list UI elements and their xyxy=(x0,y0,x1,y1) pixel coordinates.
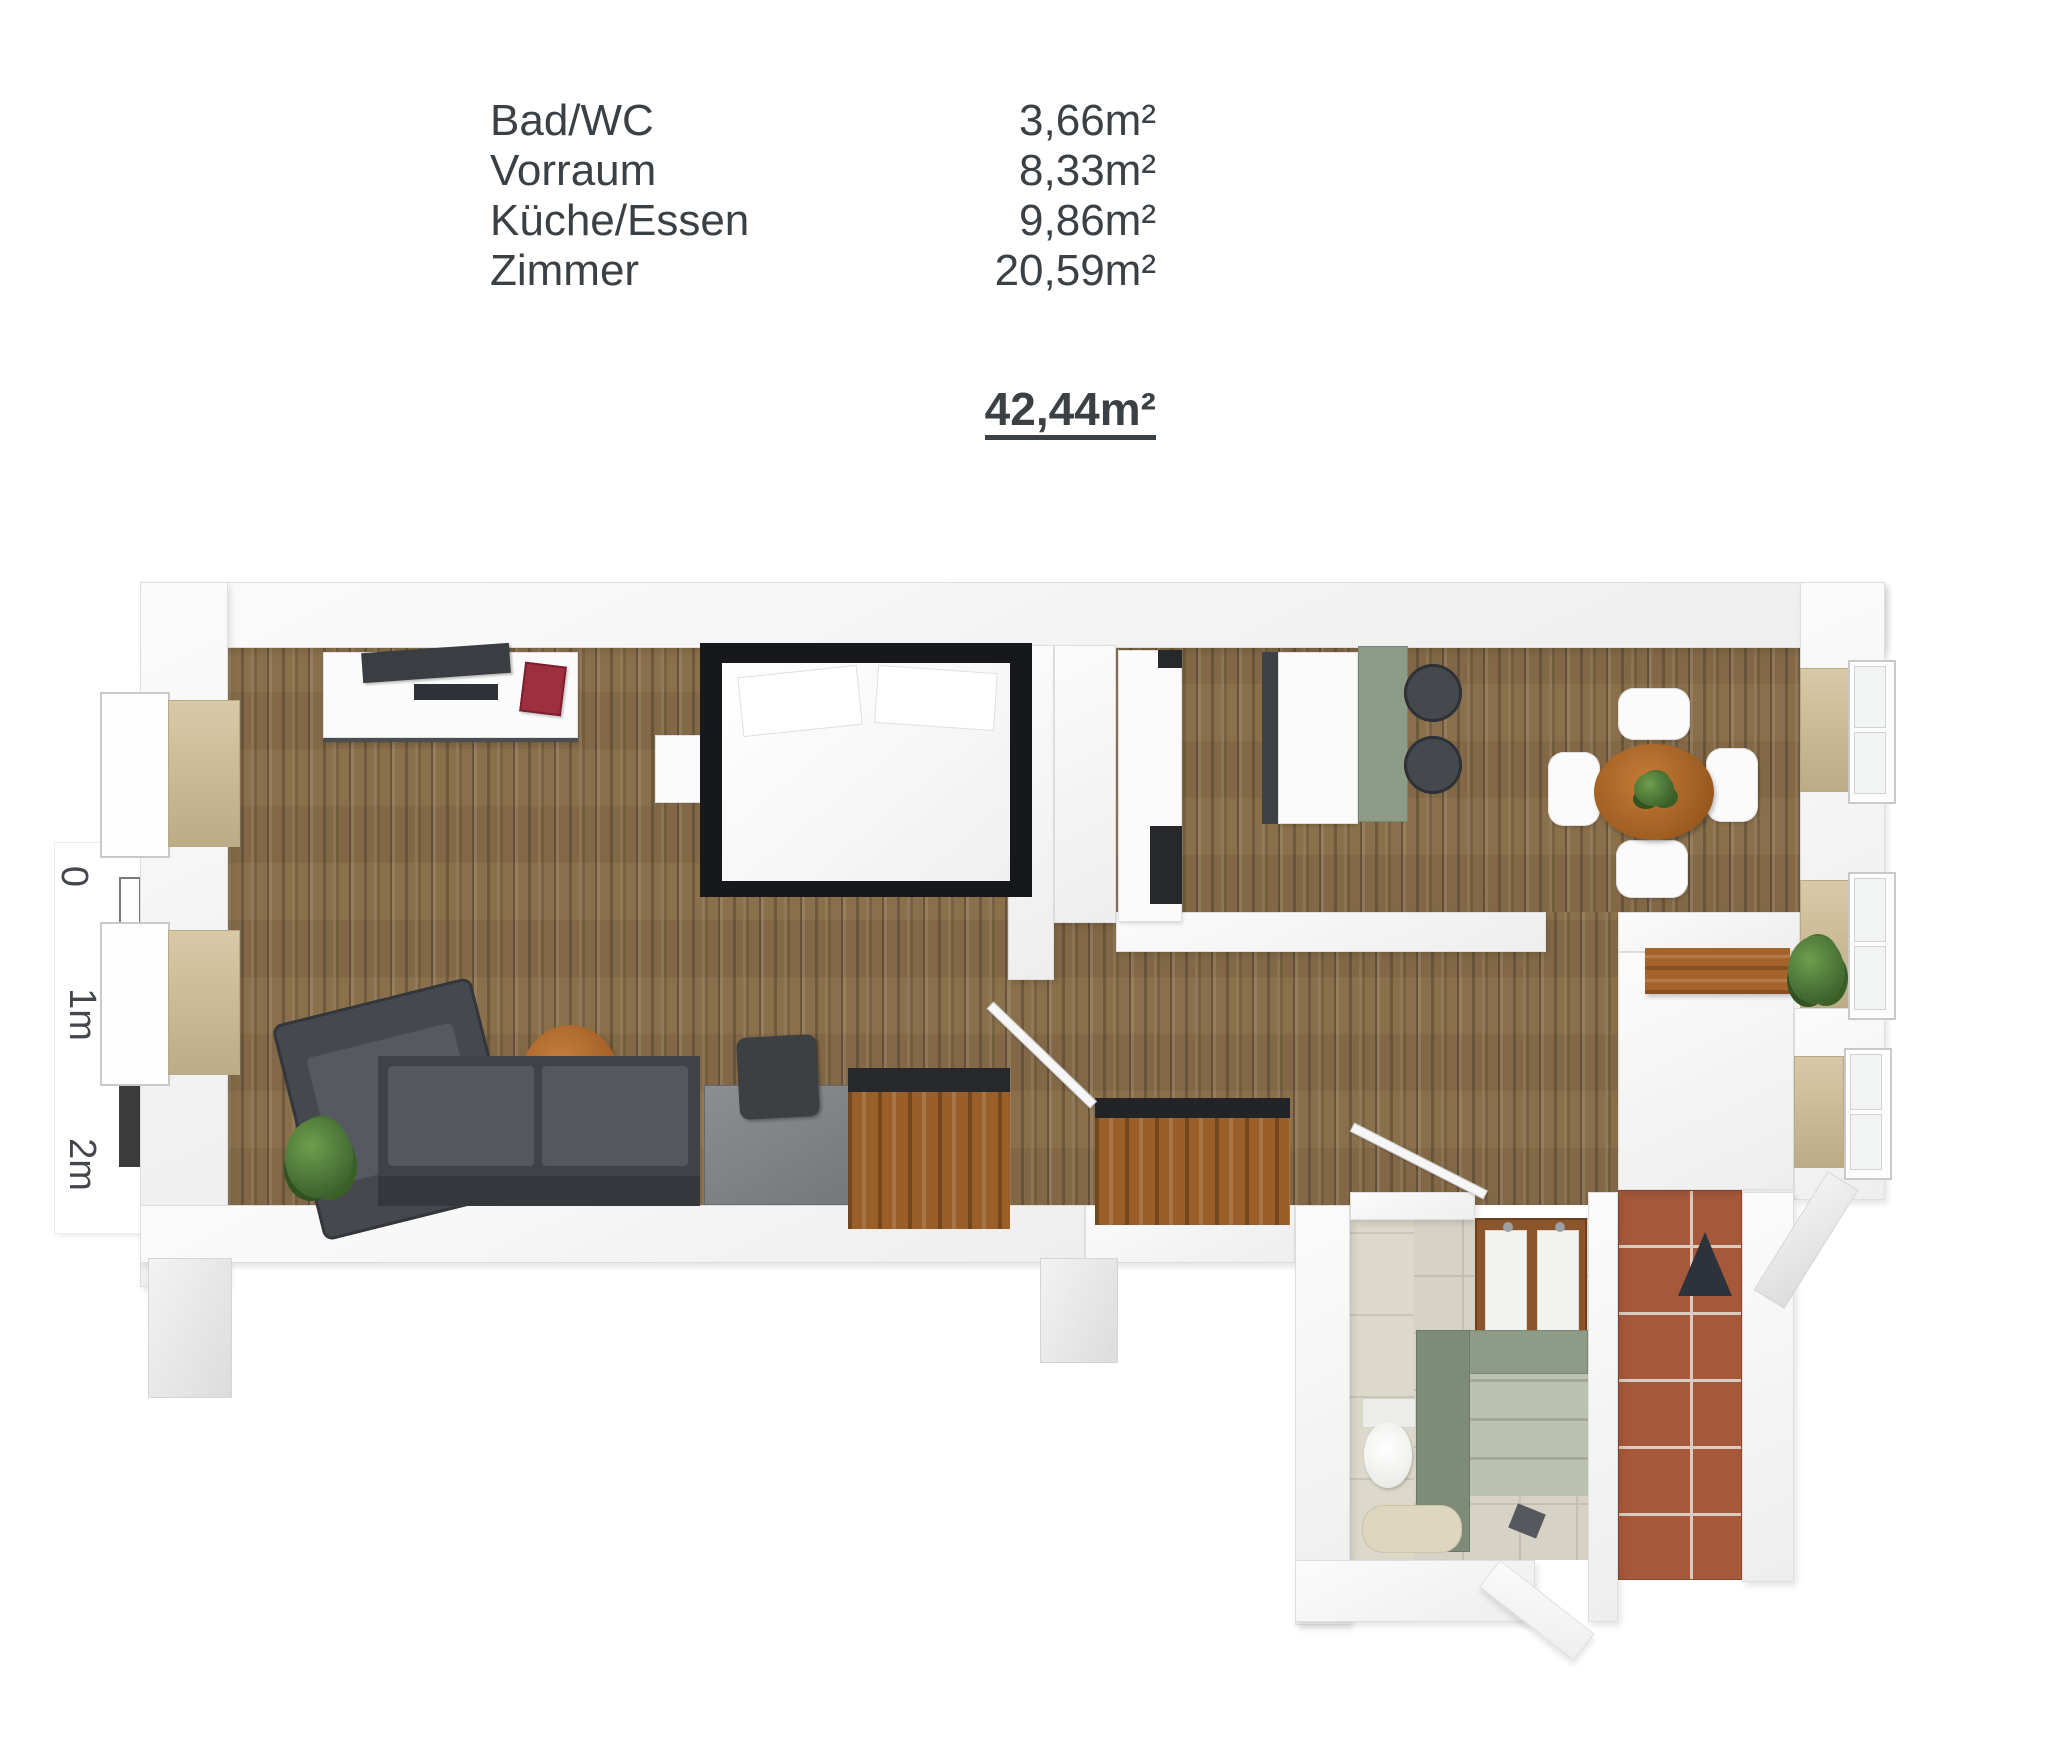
window-left-2-frame xyxy=(100,922,170,1086)
window-left-2-sill xyxy=(168,930,240,1075)
plant-zimmer xyxy=(285,1118,353,1198)
bed-pillow-right xyxy=(874,665,998,731)
scale-label-2m: 2m xyxy=(60,1138,103,1191)
table-row: Küche/Essen 9,86m² xyxy=(490,196,1156,246)
wall-shelf-wood xyxy=(1645,948,1790,994)
dining-chair-north xyxy=(1618,688,1690,740)
window-right-2-frame xyxy=(1848,872,1896,1020)
bath-drawer-unit xyxy=(1470,1374,1588,1496)
wall-top xyxy=(140,582,1885,648)
room-name: Bad/WC xyxy=(490,96,654,146)
stool-2 xyxy=(1404,736,1462,794)
wall-bad-right xyxy=(1588,1192,1618,1622)
window-left-1-sill xyxy=(168,700,240,847)
room-area: 20,59m² xyxy=(995,246,1156,296)
stair-direction-arrow-icon xyxy=(1678,1232,1732,1296)
cabinet-zimmer-wood xyxy=(848,1068,1010,1229)
desk-chair xyxy=(736,1034,820,1120)
red-decor-sideboard xyxy=(519,662,567,717)
table-row: Zimmer 20,59m² xyxy=(490,246,1156,296)
room-area: 9,86m² xyxy=(1019,196,1156,246)
dining-table-plant xyxy=(1634,772,1674,806)
wall-pier-middle xyxy=(1040,1258,1118,1363)
sofa xyxy=(378,1056,700,1206)
wall-kueche-bottom-right xyxy=(1618,912,1800,952)
dining-chair-west xyxy=(1548,752,1600,826)
bed-pillow-left xyxy=(737,665,863,737)
window-right-3-frame xyxy=(1844,1048,1892,1180)
room-area: 3,66m² xyxy=(1019,96,1156,146)
dining-chair-east xyxy=(1706,748,1758,822)
window-left-1-frame xyxy=(100,692,170,858)
wall-pier-left xyxy=(148,1258,232,1398)
area-table: Bad/WC 3,66m² Vorraum 8,33m² Küche/Essen… xyxy=(490,96,1156,440)
table-row: Bad/WC 3,66m² xyxy=(490,96,1156,146)
wall-center-column xyxy=(1054,645,1116,923)
toilet xyxy=(1362,1398,1414,1492)
plant-hall xyxy=(1788,936,1844,1004)
room-name: Küche/Essen xyxy=(490,196,749,246)
kitchen-sage-cabinet xyxy=(1358,646,1408,822)
window-right-1-frame xyxy=(1848,660,1896,804)
bath-mat xyxy=(1362,1505,1462,1553)
dining-chair-south xyxy=(1616,840,1688,898)
bed xyxy=(700,643,1032,897)
kitchen-counter xyxy=(1278,652,1358,824)
vanity-mirror-cabinet xyxy=(1475,1218,1587,1344)
floorplan-page: Bad/WC 3,66m² Vorraum 8,33m² Küche/Essen… xyxy=(0,0,2048,1740)
room-name: Zimmer xyxy=(490,246,639,296)
window-right-3-sill xyxy=(1794,1056,1844,1168)
total-row: 42,44m² xyxy=(490,384,1156,440)
room-area: 8,33m² xyxy=(1019,146,1156,196)
wall-bad-top xyxy=(1350,1192,1475,1220)
total-area: 42,44m² xyxy=(985,384,1156,440)
table-row: Vorraum 8,33m² xyxy=(490,146,1156,196)
chest-vorraum-wood xyxy=(1095,1098,1290,1225)
stool-1 xyxy=(1404,664,1462,722)
soundbar xyxy=(414,684,498,700)
kitchen-tall-cabinet xyxy=(1118,650,1182,922)
room-name: Vorraum xyxy=(490,146,656,196)
kitchen-counter-edge xyxy=(1262,652,1278,824)
window-right-1-sill xyxy=(1800,668,1850,792)
scale-label-1m: 1m xyxy=(60,988,103,1041)
scale-label-0: 0 xyxy=(52,866,95,887)
